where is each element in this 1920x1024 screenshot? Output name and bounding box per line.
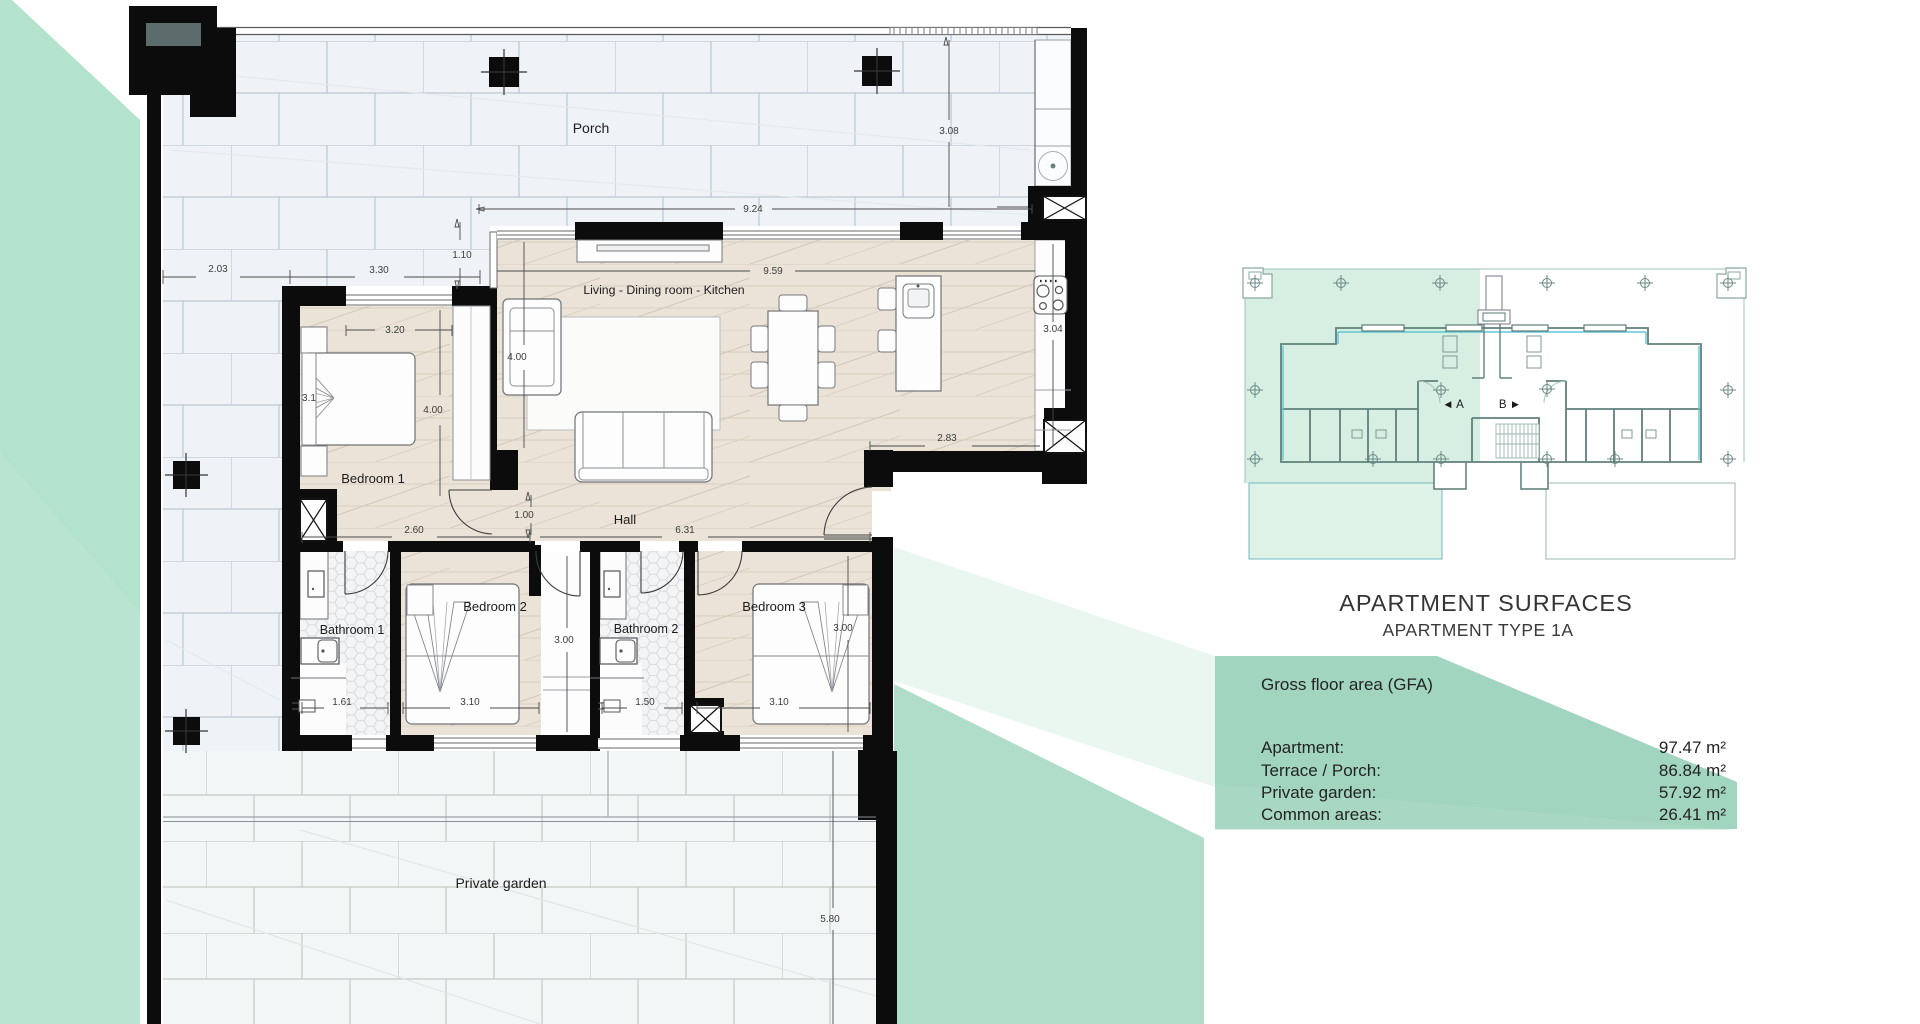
svg-text:9.24: 9.24 xyxy=(743,204,763,215)
svg-text:1.61: 1.61 xyxy=(332,697,352,708)
svg-text:3.00: 3.00 xyxy=(833,623,853,634)
svg-text:4.00: 4.00 xyxy=(507,352,527,363)
svg-text:6.31: 6.31 xyxy=(675,525,695,536)
svg-text:Bathroom 1: Bathroom 1 xyxy=(320,623,385,637)
svg-text:Apartment:: Apartment: xyxy=(1261,738,1344,757)
svg-text:3.10: 3.10 xyxy=(460,697,480,708)
svg-text:3.08: 3.08 xyxy=(939,126,959,137)
svg-text:86.84 m²: 86.84 m² xyxy=(1659,761,1726,780)
svg-text:3.20: 3.20 xyxy=(385,325,405,336)
svg-text:5.80: 5.80 xyxy=(820,914,840,925)
svg-text:2.60: 2.60 xyxy=(404,525,424,536)
svg-text:B ►: B ► xyxy=(1499,399,1521,411)
svg-text:3.04: 3.04 xyxy=(1043,324,1063,335)
svg-text:1.50: 1.50 xyxy=(635,697,655,708)
svg-text:Common areas:: Common areas: xyxy=(1261,805,1382,824)
svg-text:2.83: 2.83 xyxy=(937,433,957,444)
svg-text:57.92 m²: 57.92 m² xyxy=(1659,783,1726,802)
svg-text:Bedroom 3: Bedroom 3 xyxy=(742,599,806,614)
svg-text:Hall: Hall xyxy=(614,512,637,527)
svg-text:4.00: 4.00 xyxy=(423,405,443,416)
svg-text:◄ A: ◄ A xyxy=(1442,399,1464,411)
svg-text:Gross floor area (GFA): Gross floor area (GFA) xyxy=(1261,675,1433,694)
svg-text:3.30: 3.30 xyxy=(369,265,389,276)
svg-text:Terrace / Porch:: Terrace / Porch: xyxy=(1261,761,1381,780)
svg-text:1.10: 1.10 xyxy=(452,250,472,261)
svg-text:1.00: 1.00 xyxy=(514,510,534,521)
svg-text:Porch: Porch xyxy=(573,120,610,136)
svg-text:Bedroom 2: Bedroom 2 xyxy=(463,599,527,614)
svg-text:Bedroom 1: Bedroom 1 xyxy=(341,471,405,486)
svg-text:Living - Dining room - Kitchen: Living - Dining room - Kitchen xyxy=(583,283,744,297)
svg-text:26.41 m²: 26.41 m² xyxy=(1659,805,1726,824)
svg-text:Bathroom 2: Bathroom 2 xyxy=(614,622,679,636)
svg-text:Private garden:: Private garden: xyxy=(1261,783,1376,802)
svg-text:2.03: 2.03 xyxy=(208,264,228,275)
svg-text:APARTMENT SURFACES: APARTMENT SURFACES xyxy=(1339,590,1633,616)
svg-text:97.47 m²: 97.47 m² xyxy=(1659,738,1726,757)
svg-text:3.1: 3.1 xyxy=(302,393,316,404)
svg-text:3.10: 3.10 xyxy=(769,697,789,708)
svg-text:9.59: 9.59 xyxy=(763,266,783,277)
svg-text:3.00: 3.00 xyxy=(554,635,574,646)
svg-text:APARTMENT TYPE 1A: APARTMENT TYPE 1A xyxy=(1382,620,1573,640)
svg-text:Private garden: Private garden xyxy=(455,875,546,891)
